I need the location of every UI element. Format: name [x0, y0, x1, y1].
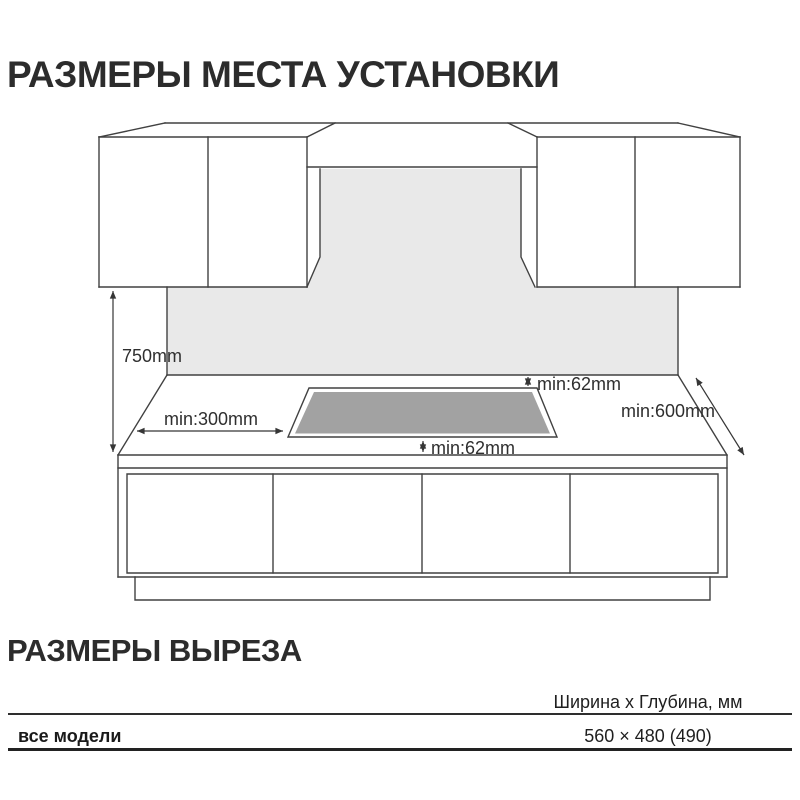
manual-page: РАЗМЕРЫ МЕСТА УСТАНОВКИ — [0, 0, 800, 800]
dimension-label-300: min:300mm — [164, 409, 258, 429]
dimension-600: min:600mm — [621, 378, 744, 455]
dimension-300: min:300mm — [137, 409, 283, 431]
installation-diagram: 750mm min:300mm min:62mm min:62mm min:60… — [0, 0, 800, 800]
dimension-62-back: min:62mm — [528, 374, 621, 394]
table-bottom-line — [8, 748, 792, 751]
dimension-label-62-front: min:62mm — [431, 438, 515, 458]
cutout-dimensions-title: РАЗМЕРЫ ВЫРЕЗА — [7, 633, 302, 669]
backsplash-panel — [167, 169, 678, 375]
table-row-model-cell: все модели — [18, 726, 121, 746]
base-cabinets — [118, 455, 727, 577]
table-row-size-cell: 560 × 480 (490) — [504, 726, 792, 746]
dimension-label-750: 750mm — [122, 346, 182, 366]
dimension-label-600: min:600mm — [621, 401, 715, 421]
size-column-header: Ширина x Глубина, мм — [504, 692, 792, 712]
plinth — [135, 577, 710, 600]
cooktop-cutout — [288, 388, 557, 437]
dimension-label-62-back: min:62mm — [537, 374, 621, 394]
dimension-62-front: min:62mm — [423, 438, 515, 458]
table-divider-line — [8, 713, 792, 715]
